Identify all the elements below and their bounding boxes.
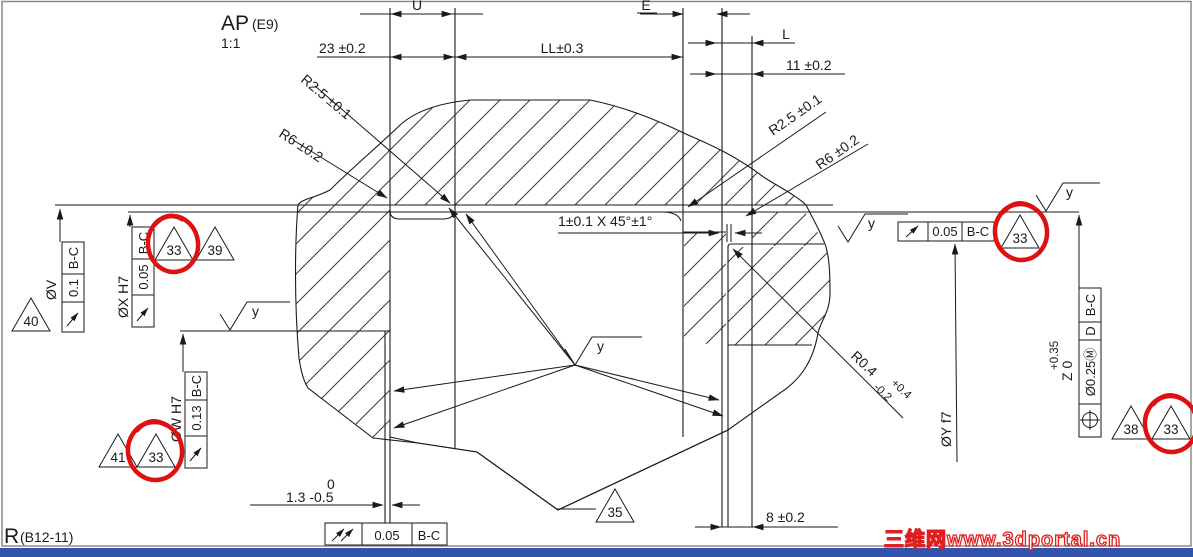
diameter-v-label: ØV [43, 279, 59, 300]
dim-u-label: U [412, 0, 422, 13]
svg-text:33: 33 [1163, 422, 1178, 437]
view-title-variant: (E9) [252, 16, 278, 32]
fcf-pos-tolerance: Ø0.25Ⓜ [1083, 348, 1098, 396]
drawing-canvas: U 23 ±0.2 LL±0.3 E L 11 ±0.2 8 ±0.2 [0, 0, 1193, 557]
dim-l-label: L [782, 26, 790, 42]
svg-text:35: 35 [607, 505, 622, 520]
fcf-right-value: 0.05 [932, 224, 957, 239]
dim-1-3-upper-tol: 0 [327, 476, 335, 492]
diameter-y-label: ØY f7 [938, 411, 954, 447]
dim-z-upper-tol: +0.35 [1049, 341, 1061, 370]
view-title-scale: 1:1 [221, 35, 241, 51]
view-title-name: AP [221, 12, 249, 35]
dim-z-label: Z 0 [1059, 361, 1075, 381]
dim-e-label: E [641, 0, 650, 13]
fcf-v-value: 0.1 [66, 279, 81, 297]
surface-finish-y-icon: y [597, 338, 604, 354]
dim-23-label: 23 ±0.2 [319, 40, 366, 56]
dim-ll-label: LL±0.3 [541, 40, 584, 56]
surface-finish-y-icon: y [1066, 184, 1073, 200]
fcf-w-datum: B-C [189, 375, 204, 397]
svg-text:33: 33 [1012, 231, 1027, 246]
fcf-v-datum: B-C [66, 247, 81, 269]
svg-text:41: 41 [110, 450, 125, 465]
drawing-ref-name: R [4, 525, 19, 548]
diameter-x-label: ØX H7 [115, 276, 131, 318]
chamfer-label: 1±0.1 X 45°±1° [558, 213, 652, 229]
watermark: 三维网www.3dportal.cn [884, 527, 1121, 551]
dim-8-label: 8 ±0.2 [766, 509, 805, 525]
svg-text:33: 33 [166, 243, 181, 258]
fcf-pos-datum2: B-C [1083, 294, 1098, 316]
fcf-bottom-datum: B-C [418, 528, 440, 543]
fcf-pos-datum1: D [1083, 326, 1098, 335]
drawing-ref-code: (B12-11) [20, 529, 73, 545]
fcf-w-value: 0.13 [189, 405, 204, 430]
svg-text:39: 39 [207, 243, 222, 258]
fcf-right-datum: B-C [967, 224, 989, 239]
svg-text:40: 40 [23, 314, 38, 329]
fcf-bottom-value: 0.05 [374, 528, 399, 543]
svg-text:33: 33 [148, 450, 163, 465]
svg-text:38: 38 [1123, 422, 1138, 437]
drawing-page: U 23 ±0.2 LL±0.3 E L 11 ±0.2 8 ±0.2 [0, 0, 1193, 557]
surface-finish-y-icon: y [252, 303, 259, 319]
dim-11-label: 11 ±0.2 [786, 57, 832, 73]
surface-finish-y-icon: y [868, 215, 875, 231]
fcf-x-value: 0.05 [136, 264, 151, 289]
drawing-ref: R (B12-11) [4, 525, 73, 548]
